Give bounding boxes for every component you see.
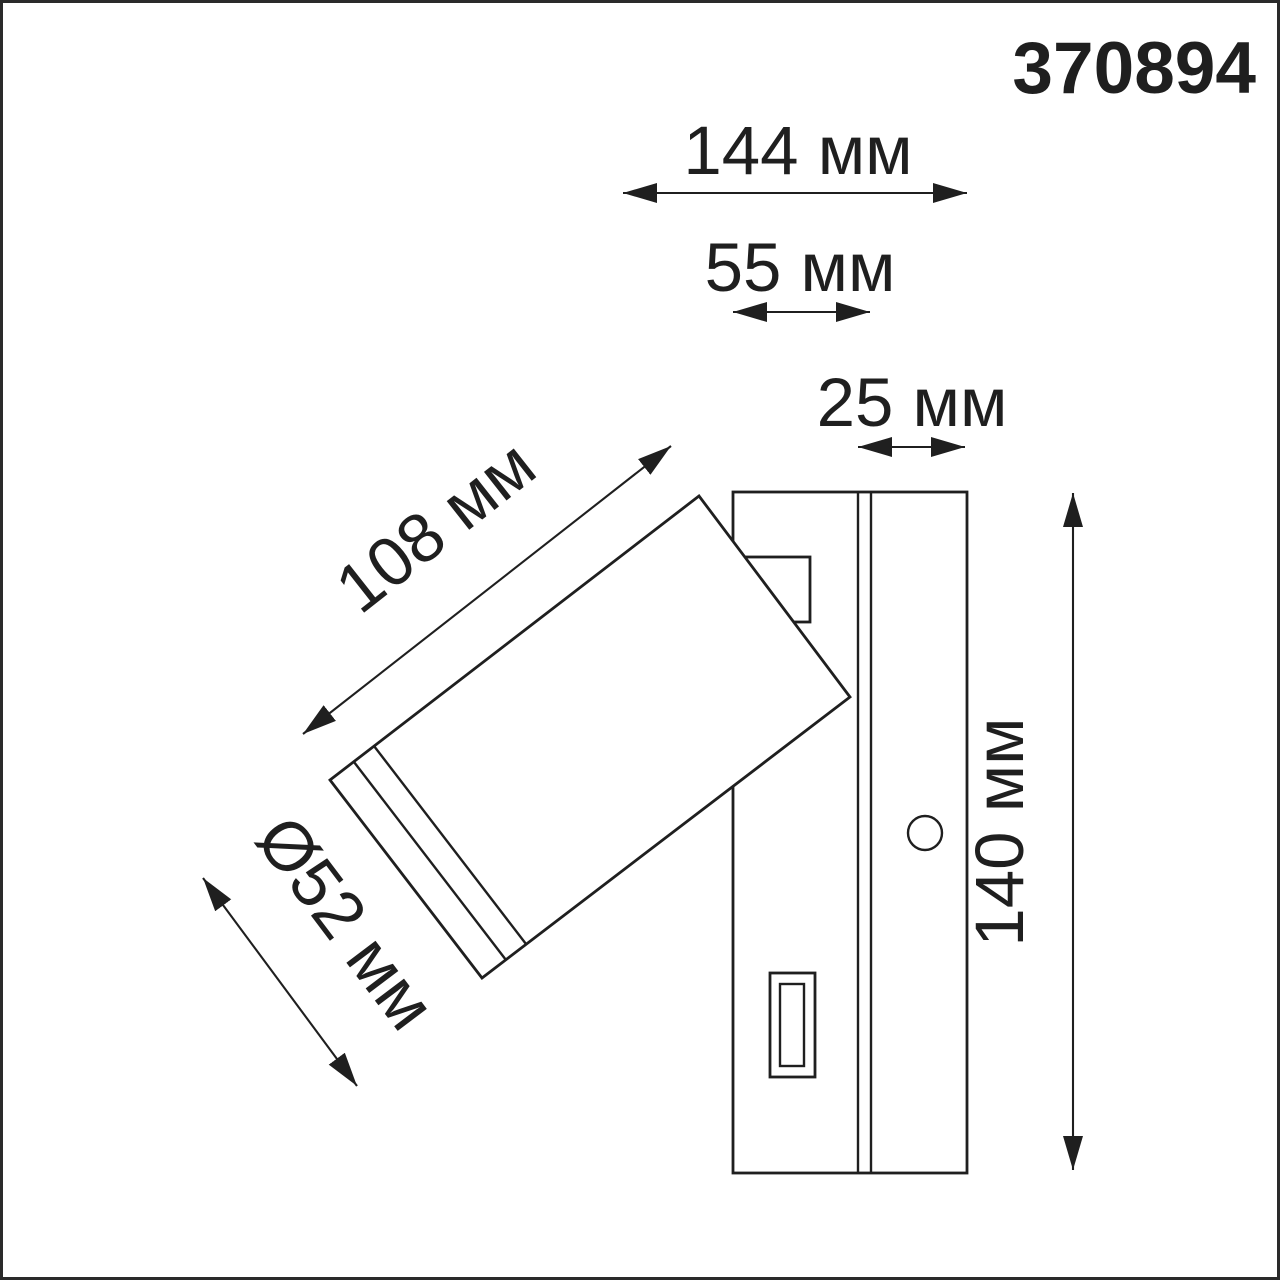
dimension-label-144: 144 мм: [683, 112, 912, 189]
dimension-label-25: 25 мм: [817, 364, 1008, 441]
dimension-total-depth: 144 мм: [623, 112, 967, 193]
dimension-body-depth: 55 мм: [705, 229, 896, 312]
switch-slot-outer: [770, 973, 815, 1077]
dimension-label-108: 108 мм: [322, 425, 550, 627]
luminaire-dimension-drawing: 370894 144 мм: [0, 0, 1280, 1280]
dimension-label-140: 140 мм: [961, 717, 1038, 946]
part-number: 370894: [1012, 28, 1256, 109]
dimension-plate-depth: 25 мм: [817, 364, 1008, 447]
dimension-label-55: 55 мм: [705, 229, 896, 306]
fixture-drawing: [330, 492, 967, 1173]
dimension-plate-height: 140 мм: [961, 493, 1073, 1170]
technical-drawing-page: 370894 144 мм: [0, 0, 1280, 1280]
